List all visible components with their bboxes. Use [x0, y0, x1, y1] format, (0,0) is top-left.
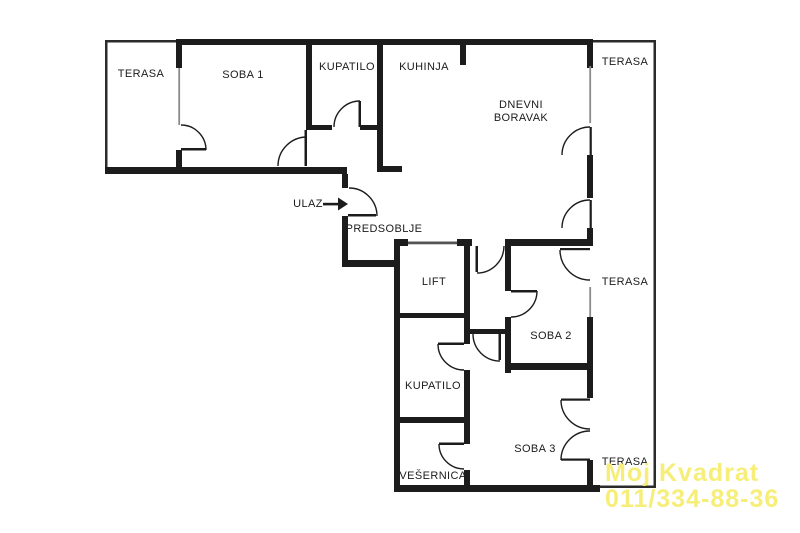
ulaz-arrow-icon — [323, 198, 348, 211]
room-label-soba2: SOBA 2 — [530, 330, 572, 342]
watermark-line2: 011/334-88-36 — [605, 486, 779, 512]
room-label-vesernica: VEŠERNICA — [399, 470, 466, 482]
door-leaves — [181, 101, 592, 461]
room-label-soba3: SOBA 3 — [514, 443, 556, 455]
lift-door — [408, 242, 457, 245]
room-label-dnevni-boravak: DNEVNI BORAVAK — [479, 99, 563, 125]
room-label-lift: LIFT — [422, 276, 446, 288]
room-label-kuhinja: KUHINJA — [399, 61, 449, 73]
room-label-terasa-top-right: TERASA — [602, 56, 648, 68]
watermark: Moj Kvadrat 011/334-88-36 — [605, 460, 779, 512]
door-arcs — [181, 101, 590, 469]
room-label-soba1: SOBA 1 — [222, 69, 264, 81]
room-label-terasa-top-left: TERASA — [118, 68, 164, 80]
floorplan-page: TERASA SOBA 1 KUPATILO KUHINJA DNEVNI BO… — [0, 0, 800, 533]
room-label-ulaz: ULAZ — [293, 198, 323, 210]
room-label-terasa-mid-right: TERASA — [602, 276, 648, 288]
room-label-kupatilo-top: KUPATILO — [319, 61, 375, 73]
room-label-predsoblje: PREDSOBLJE — [346, 223, 423, 235]
watermark-line1: Moj Kvadrat — [605, 460, 779, 486]
room-label-kupatilo-bottom: KUPATILO — [405, 380, 461, 392]
